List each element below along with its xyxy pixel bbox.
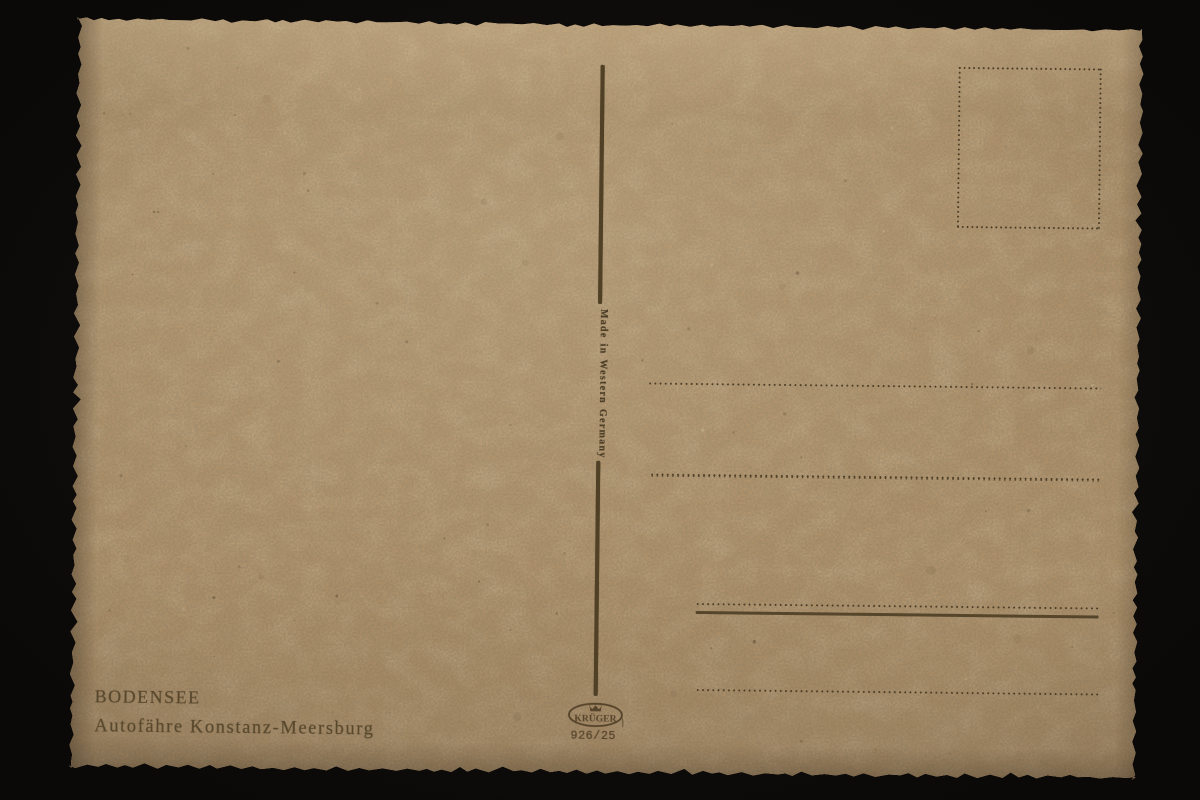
svg-text:KRÜGER: KRÜGER <box>574 711 617 724</box>
